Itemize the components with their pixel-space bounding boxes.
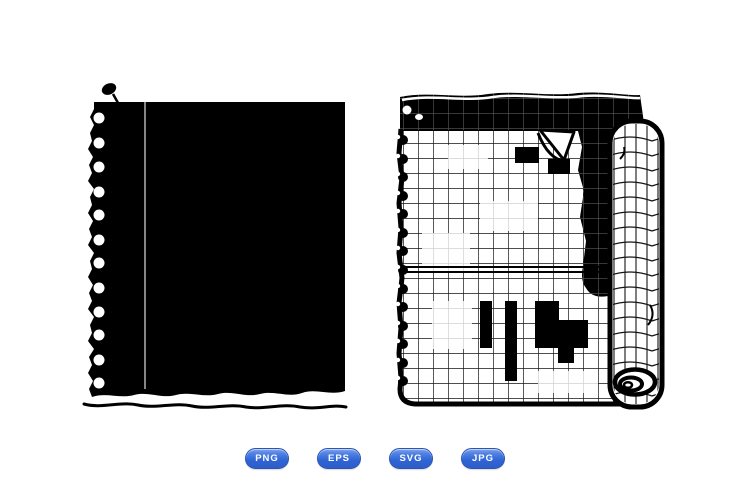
curled-graph-paper-notebook-page xyxy=(388,83,683,423)
page-curl xyxy=(610,121,662,407)
format-badge-jpg[interactable]: JPG xyxy=(461,448,505,469)
format-badge-svg[interactable]: SVG xyxy=(389,448,433,469)
format-badge-eps[interactable]: EPS xyxy=(317,448,361,469)
torn-notebook-paper-silhouette xyxy=(78,73,358,423)
paper-body xyxy=(88,102,345,397)
product-preview-canvas: PNG EPS SVG JPG xyxy=(0,0,750,500)
format-badge-row: PNG EPS SVG JPG xyxy=(0,448,750,469)
torn-top-strip xyxy=(400,93,645,130)
roll-spiral-end xyxy=(615,370,655,395)
torn-bottom-edge xyxy=(84,404,346,408)
format-badge-png[interactable]: PNG xyxy=(245,448,289,469)
